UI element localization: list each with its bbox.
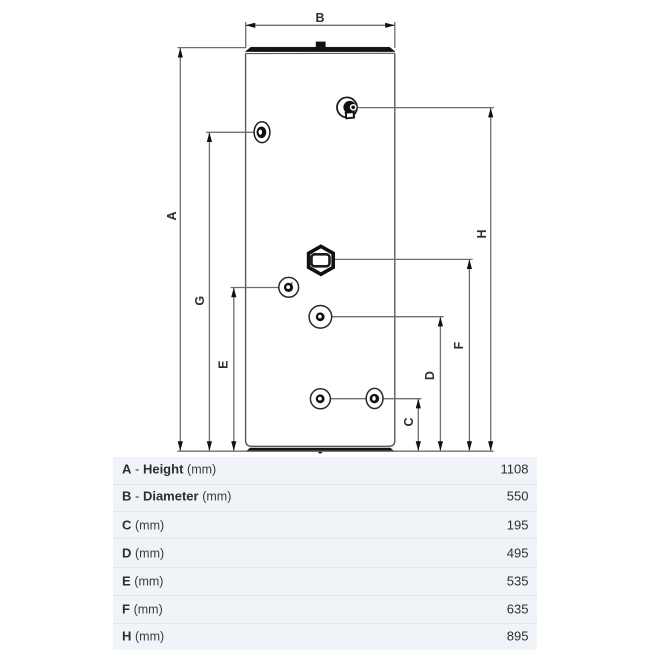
svg-text:G: G	[193, 296, 207, 306]
svg-text:C: C	[402, 417, 416, 426]
svg-text:A: A	[165, 211, 179, 220]
svg-text:E: E	[217, 361, 231, 369]
svg-text:D: D	[423, 371, 437, 380]
svg-text:B: B	[315, 11, 324, 25]
svg-text:H: H	[475, 229, 489, 238]
svg-text:F: F	[452, 341, 466, 349]
